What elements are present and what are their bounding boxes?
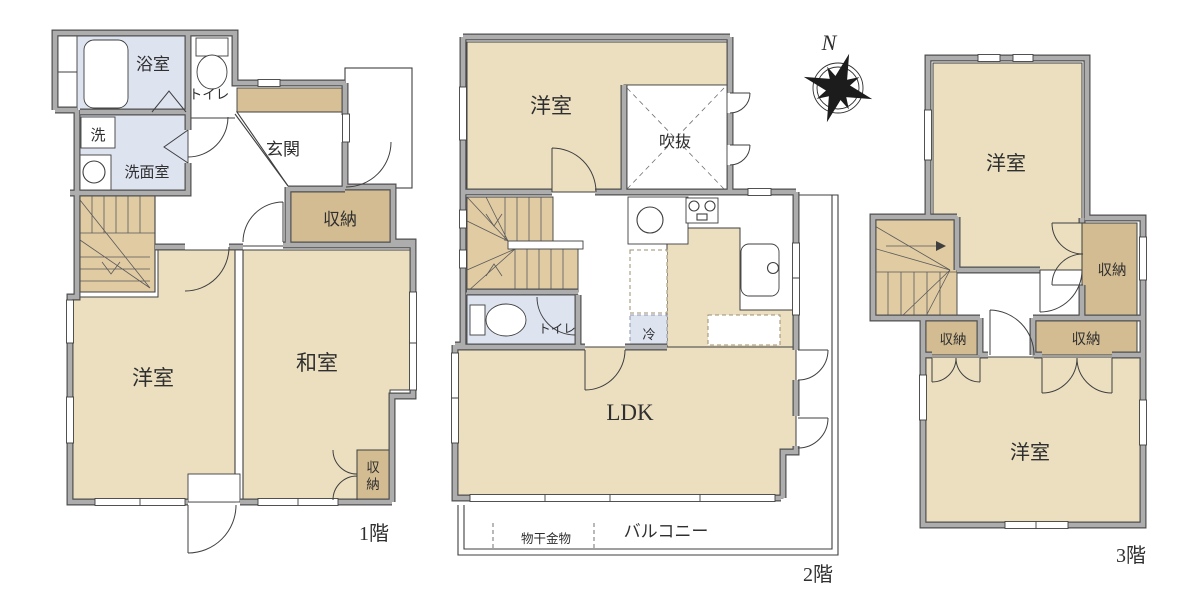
compass-star-diagonal bbox=[806, 56, 871, 121]
label-japanese-1f: 和室 bbox=[296, 351, 338, 375]
exterior-door-1f bbox=[188, 505, 236, 553]
label-toilet-1f: トイレ bbox=[189, 87, 230, 102]
label-ldk: LDK bbox=[606, 400, 654, 425]
label-floor-1: 1階 bbox=[359, 522, 389, 545]
window-3f-left-upper bbox=[925, 110, 932, 160]
compass-north-label: N bbox=[821, 30, 838, 55]
entrance-door-leaf bbox=[343, 114, 350, 142]
window-3f-top-1 bbox=[978, 55, 1000, 62]
toilet-tank-2f-icon bbox=[470, 305, 485, 335]
window-3f-bottom bbox=[1005, 522, 1068, 529]
label-storage-center: 収納 bbox=[1072, 331, 1101, 348]
threshold-1f bbox=[188, 474, 240, 502]
label-bath: 浴室 bbox=[136, 55, 170, 74]
label-storage-east: 収納 bbox=[1098, 262, 1127, 279]
washbasin-box bbox=[80, 155, 111, 190]
south-room-door-3f bbox=[990, 310, 1034, 355]
window-1f-entrance bbox=[258, 80, 280, 87]
label-entrance: 玄関 bbox=[266, 140, 300, 159]
porch-tile bbox=[345, 68, 412, 188]
floor-2-plan: 洋室 吹抜 トイレ 冷 LDK 物干金物 バルコニー 2階 bbox=[452, 37, 839, 586]
window-2f-balcony bbox=[470, 495, 775, 502]
stair-handrail-2f bbox=[508, 241, 583, 249]
room-divider-1f bbox=[235, 250, 243, 502]
floor-plan-drawing: 浴室 トイレ 洗 洗面室 玄関 収納 洋室 和室 収 納 1階 bbox=[0, 0, 1200, 615]
sink-icon bbox=[741, 244, 779, 296]
north-room-door-3f bbox=[1040, 270, 1082, 312]
balcony-doors-2f bbox=[798, 350, 828, 448]
window-2f-kitchen-right bbox=[793, 243, 800, 315]
room-storage-tatami-1f bbox=[357, 450, 390, 502]
label-storage-left: 収納 bbox=[940, 332, 967, 347]
window-3f-right-upper bbox=[1140, 237, 1147, 280]
label-western-south-3f: 洋室 bbox=[1010, 441, 1050, 464]
floor-1-plan: 浴室 トイレ 洗 洗面室 玄関 収納 洋室 和室 収 納 1階 bbox=[55, 33, 417, 553]
label-western-north-3f: 洋室 bbox=[986, 152, 1026, 175]
label-laundry-hardware: 物干金物 bbox=[521, 531, 571, 546]
floor-3-plan: 洋室 収納 収納 収納 洋室 3階 bbox=[873, 55, 1147, 568]
window-1f-right bbox=[410, 292, 417, 390]
label-western-2f: 洋室 bbox=[530, 94, 572, 118]
label-storage-tatami-1: 収 bbox=[366, 460, 380, 475]
label-balcony: バルコニー bbox=[624, 522, 709, 541]
label-storage-tatami-2: 納 bbox=[366, 477, 380, 492]
label-toilet-2f: トイレ bbox=[538, 322, 576, 336]
window-1f-left-lower bbox=[67, 397, 74, 443]
label-refrigerator: 冷 bbox=[642, 327, 655, 342]
stairs-1f bbox=[80, 195, 155, 292]
kitchen-counter bbox=[630, 250, 667, 313]
window-2f-kitchen-top bbox=[748, 189, 771, 196]
window-1f-left-upper bbox=[67, 300, 74, 343]
toilet-tank-1f-icon bbox=[196, 38, 228, 56]
label-floor-3: 3階 bbox=[1116, 544, 1146, 567]
compass-star-icon bbox=[793, 43, 884, 134]
window-2f-left-upper bbox=[460, 87, 467, 140]
toilet-bowl-2f-icon bbox=[486, 304, 526, 336]
bathtub-icon bbox=[84, 40, 128, 108]
japanese-room-door-1f bbox=[243, 202, 283, 242]
label-floor-2: 2階 bbox=[803, 563, 833, 586]
window-3f-left-lower bbox=[920, 375, 927, 420]
toilet-door-1f bbox=[188, 117, 228, 157]
entrance-step bbox=[237, 88, 343, 112]
window-3f-right-lower bbox=[1140, 400, 1147, 445]
label-storage-hall-1f: 収納 bbox=[323, 210, 357, 229]
floor-plan-page: 浴室 トイレ 洗 洗面室 玄関 収納 洋室 和室 収 納 1階 bbox=[0, 0, 1200, 615]
kitchen-counter-2 bbox=[708, 315, 780, 345]
window-2f-stairs-2 bbox=[460, 250, 467, 268]
label-washroom: 洗面室 bbox=[124, 164, 169, 181]
toilet-bowl-1f-icon bbox=[197, 55, 227, 89]
window-3f-top-2 bbox=[1013, 55, 1033, 62]
label-laundry: 洗 bbox=[90, 127, 105, 144]
bath-window-ledge bbox=[57, 36, 77, 110]
window-2f-stairs-1 bbox=[460, 210, 467, 228]
label-western-1f: 洋室 bbox=[132, 366, 174, 390]
compass-rose: N bbox=[793, 30, 884, 133]
room-western-south-3f bbox=[926, 357, 1140, 523]
label-atrium: 吹抜 bbox=[659, 133, 691, 151]
